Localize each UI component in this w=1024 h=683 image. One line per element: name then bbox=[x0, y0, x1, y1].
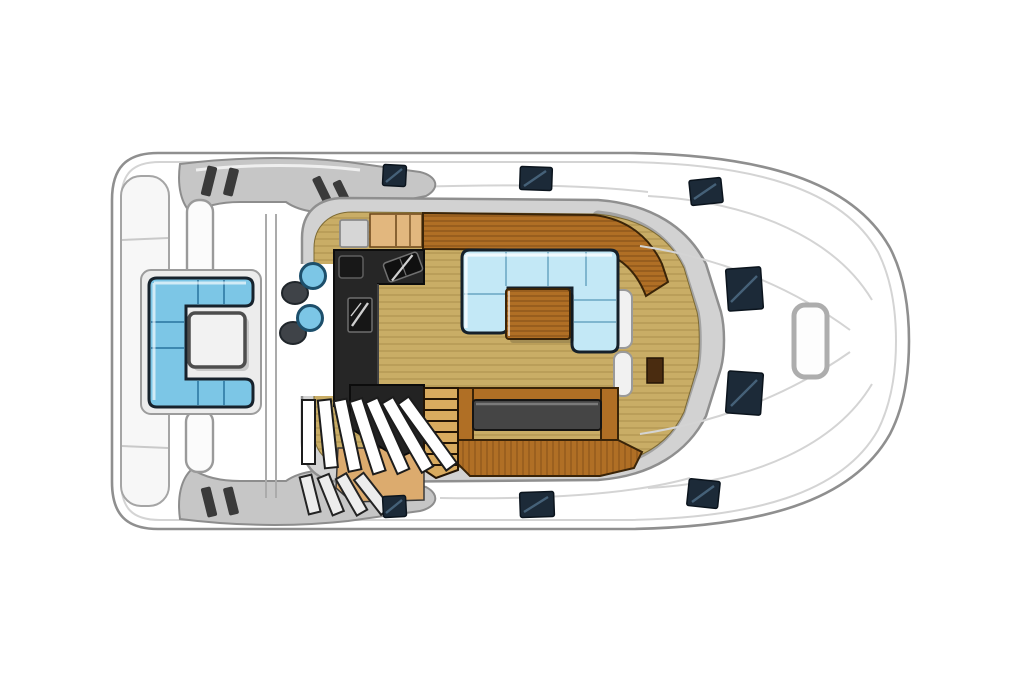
galley-cooktop bbox=[339, 256, 363, 278]
deck-hatch bbox=[687, 479, 721, 509]
stanchion-post-bottom bbox=[186, 410, 213, 472]
forward-appliance bbox=[340, 220, 368, 247]
deck-hatch bbox=[689, 177, 723, 205]
deck-hatch bbox=[382, 164, 406, 186]
forward-cabinets bbox=[370, 214, 422, 247]
deck-hatch bbox=[726, 371, 764, 415]
deck-plan-stage bbox=[0, 0, 1024, 683]
dinette-table bbox=[506, 289, 570, 339]
tv-cabinet bbox=[647, 358, 663, 383]
anchor-locker bbox=[794, 305, 827, 377]
deck-hatch bbox=[520, 491, 555, 517]
yacht-deck-plan bbox=[0, 0, 1024, 683]
stool-seat-blue bbox=[301, 264, 326, 289]
deck-hatch bbox=[520, 166, 553, 190]
galley-appliance-icon bbox=[348, 298, 372, 332]
deck-hatch bbox=[726, 267, 764, 311]
deck-hatch bbox=[382, 495, 406, 517]
stool-seat-blue bbox=[298, 306, 323, 331]
cockpit-table bbox=[189, 313, 245, 367]
